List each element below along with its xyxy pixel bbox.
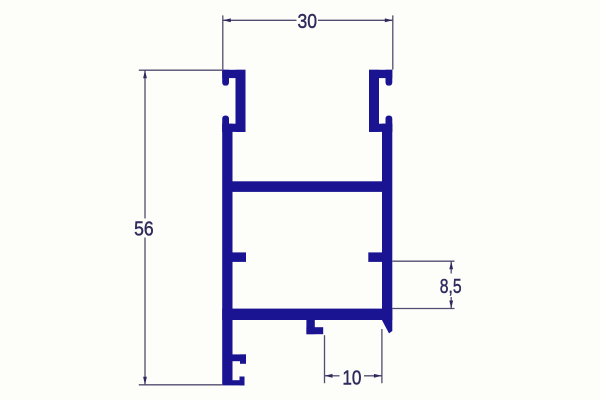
svg-text:56: 56 <box>134 218 154 241</box>
svg-text:30: 30 <box>298 10 318 33</box>
svg-text:8,5: 8,5 <box>440 275 462 298</box>
svg-text:10: 10 <box>342 367 361 389</box>
